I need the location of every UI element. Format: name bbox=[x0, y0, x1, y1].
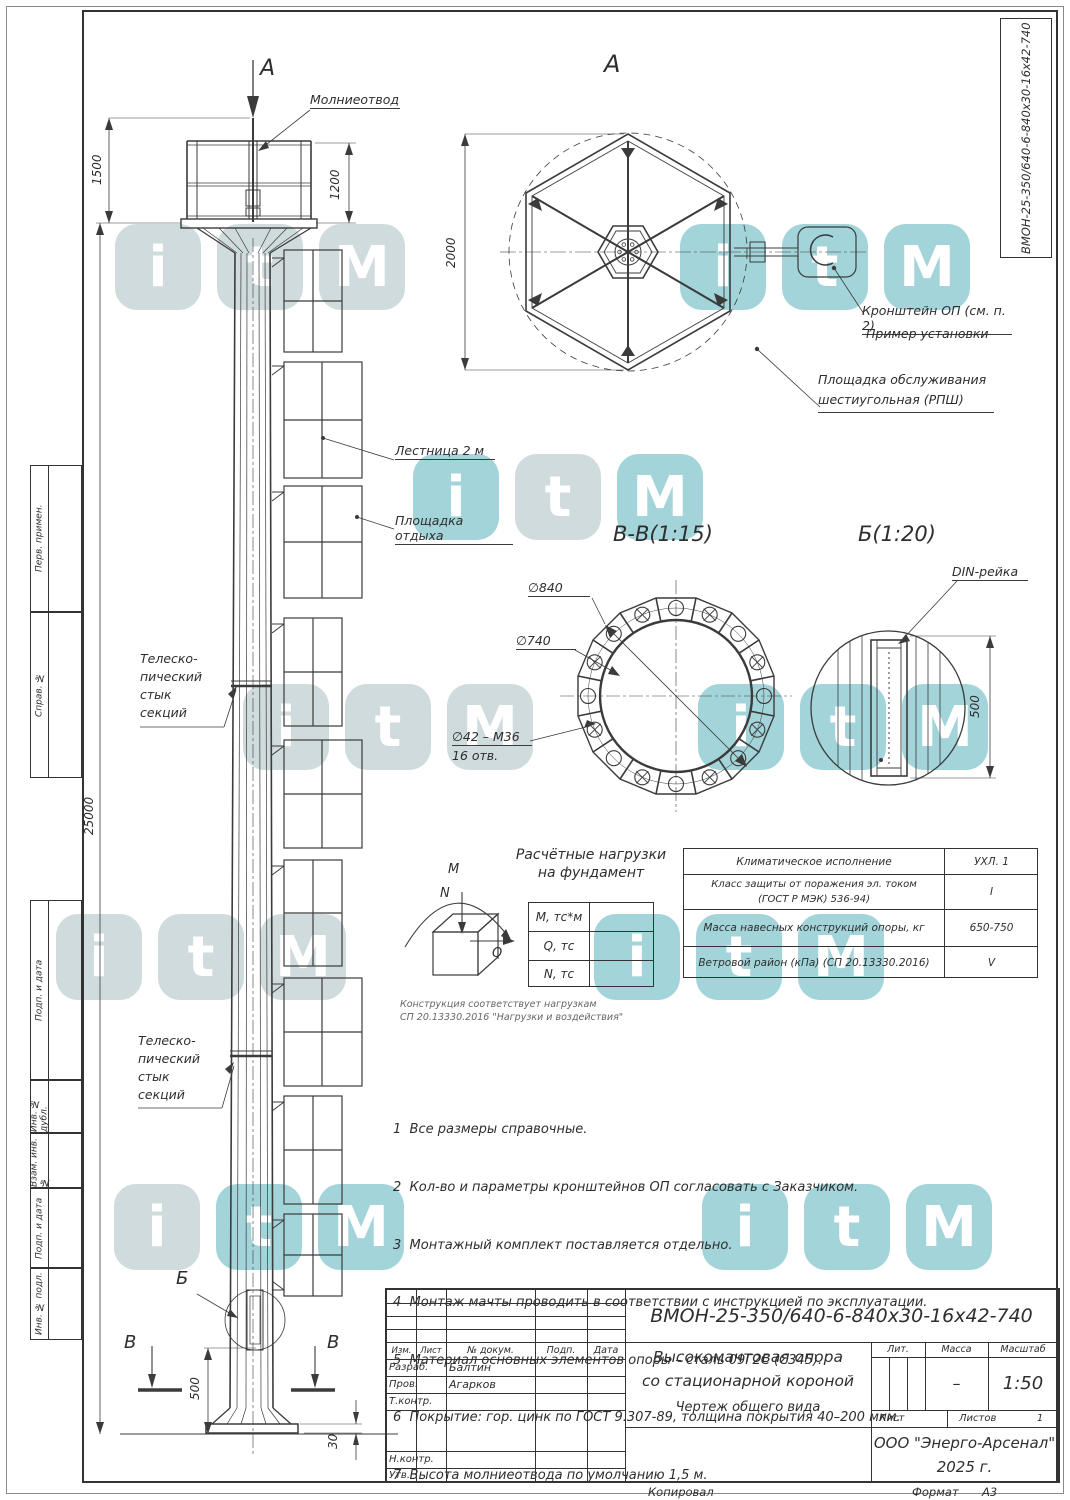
climate-row-value: V bbox=[944, 946, 1039, 979]
holes-count-label: 16 отв. bbox=[452, 748, 498, 763]
front-view-mast bbox=[120, 60, 398, 1455]
margin-box: Перв. примен. bbox=[30, 465, 82, 612]
loads-note: Конструкция соответствует нагрузкам СП 2… bbox=[400, 998, 623, 1024]
margin-label: Взам. инв. № bbox=[31, 1134, 48, 1187]
telescopic-joint-label-2: Телеско- пический стык секций bbox=[138, 1032, 200, 1104]
ladder-label: Лестница 2 м bbox=[395, 443, 495, 460]
dim-1200: 1200 bbox=[328, 154, 342, 216]
label-line: Расчётные нагрузки bbox=[510, 846, 672, 864]
view-a-hexagon bbox=[461, 133, 866, 407]
top-stamp-doc-number: ВМОН-25-350/640-6-840х30-16х42-740 bbox=[1000, 18, 1052, 258]
climate-row-value: 650-750 bbox=[944, 909, 1039, 946]
label-line: Телеско- bbox=[138, 1032, 200, 1050]
label-line: стык bbox=[140, 686, 202, 704]
label-line: шестиугольная (РПШ) bbox=[818, 390, 994, 410]
note-line: 3 Монтажный комплект поставляется отдель… bbox=[393, 1236, 1003, 1255]
company-year: 2025 г. bbox=[871, 1455, 1058, 1479]
label-line: пический bbox=[138, 1050, 200, 1068]
margin-box: Подп. и дата bbox=[30, 1188, 82, 1268]
climate-row-label: Климатическое исполнение bbox=[684, 849, 944, 874]
listov-label: Листов bbox=[959, 1410, 1019, 1427]
scale-value: 1:50 bbox=[988, 1357, 1058, 1410]
margin-box: Инв. № дубл. bbox=[30, 1080, 82, 1133]
listov-value: 1 bbox=[1027, 1410, 1053, 1427]
moment-label: М bbox=[448, 862, 459, 877]
label-line: Площадка обслуживания bbox=[818, 370, 994, 390]
loads-row-label: N, тс bbox=[529, 960, 589, 988]
format-value: А3 bbox=[982, 1485, 997, 1499]
dim-2000: 2000 bbox=[444, 224, 458, 282]
drawing-type: Чертеж общего вида bbox=[625, 1396, 871, 1418]
section-b-mark-left: В bbox=[124, 1332, 136, 1353]
label-line: СП 20.13330.2016 "Нагрузки и воздействия… bbox=[400, 1011, 623, 1024]
row-utv: Утв. bbox=[389, 1468, 446, 1483]
label-line: секций bbox=[140, 704, 202, 722]
title-block: ВМОН-25-350/640-6-840х30-16х42-740 Изм. … bbox=[385, 1288, 1060, 1483]
margin-box: Взам. инв. № bbox=[30, 1133, 82, 1188]
climate-row-value: УХЛ. 1 bbox=[944, 849, 1039, 874]
rest-platform-label: Площадка отдыха bbox=[395, 513, 513, 545]
holes-label: ∅42 – М36 bbox=[452, 729, 532, 746]
row-razrab: Разраб. bbox=[389, 1359, 446, 1376]
note-line: 2 Кол-во и параметры кронштейнов ОП согл… bbox=[393, 1178, 1003, 1197]
margin-box: Подп. и дата bbox=[30, 900, 82, 1080]
drawing-name-line1: Высокомачтовая опора bbox=[625, 1345, 871, 1369]
loads-row-label: М, тс*м bbox=[529, 903, 589, 931]
lit-header: Лит. bbox=[871, 1342, 925, 1357]
loads-title: Расчётные нагрузки на фундамент bbox=[510, 846, 672, 882]
label-line: секций bbox=[138, 1086, 200, 1104]
din-rail-label: DIN-рейка bbox=[952, 564, 1028, 581]
margin-label: Подп. и дата bbox=[31, 901, 48, 1079]
loads-table: М, тс*м Q, тс N, тс bbox=[528, 902, 654, 987]
col-podp: Подп. bbox=[535, 1342, 587, 1359]
col-ndoc: № докум. bbox=[446, 1342, 535, 1359]
titleblock-doc-number: ВМОН-25-350/640-6-840х30-16х42-740 bbox=[625, 1290, 1058, 1342]
label-line: стык bbox=[138, 1068, 200, 1086]
margin-label: Инв. № подл. bbox=[31, 1269, 48, 1339]
dia-840-label: ∅840 bbox=[528, 580, 590, 597]
dim-500-front: 500 bbox=[188, 1360, 202, 1418]
format-label: Формат bbox=[912, 1485, 959, 1499]
col-data: Дата bbox=[587, 1342, 625, 1359]
margin-label: Подп. и дата bbox=[31, 1189, 48, 1267]
margin-label: Инв. № дубл. bbox=[31, 1081, 48, 1132]
detail-b-mark: Б bbox=[176, 1268, 188, 1289]
section-bb-flange bbox=[530, 580, 792, 812]
climate-row-value: I bbox=[944, 874, 1039, 909]
row-tkontr: Т.контр. bbox=[389, 1393, 446, 1410]
label-line: на фундамент bbox=[510, 864, 672, 882]
person-prov: Агарков bbox=[449, 1376, 535, 1393]
company-name: ООО "Энерго-Арсенал" bbox=[871, 1429, 1058, 1457]
label-line: Телеско- bbox=[140, 650, 202, 668]
dim-500-detail: 500 bbox=[968, 678, 982, 736]
col-list: Лист bbox=[416, 1342, 446, 1359]
massa-header: Масса bbox=[925, 1342, 988, 1357]
axial-label: N bbox=[440, 886, 450, 901]
dia-740-label: ∅740 bbox=[516, 633, 576, 650]
margin-box: Справ. № bbox=[30, 612, 82, 778]
drawing-name-line2: со стационарной короной bbox=[625, 1369, 871, 1393]
dim-25000: 25000 bbox=[82, 783, 96, 849]
margin-label: Справ. № bbox=[31, 613, 48, 777]
bracket-example-label: Пример установки bbox=[866, 326, 989, 341]
col-izm: Изм. bbox=[387, 1342, 416, 1359]
row-prov: Пров. bbox=[389, 1376, 446, 1393]
massa-value: – bbox=[925, 1357, 988, 1410]
shear-label: Q bbox=[492, 946, 502, 961]
label-line: Конструкция соответствует нагрузкам bbox=[400, 998, 623, 1011]
drawing-sheet: itM itM itM itM itM itM itM itM itM Перв… bbox=[0, 0, 1070, 1500]
label-line: пический bbox=[140, 668, 202, 686]
section-bb-title: В-В(1:15) bbox=[613, 522, 713, 546]
climate-table: Климатическое исполнение УХЛ. 1 Класс за… bbox=[683, 848, 1038, 978]
detail-b-title: Б(1:20) bbox=[858, 522, 936, 546]
dim-30: 30 bbox=[326, 1424, 340, 1458]
loads-cube-diagram bbox=[405, 892, 515, 975]
service-platform-label: Площадка обслуживания шестиугольная (РПШ… bbox=[818, 370, 994, 413]
section-b-mark-right: В bbox=[327, 1332, 339, 1353]
loads-row-label: Q, тс bbox=[529, 931, 589, 960]
climate-row-label: Масса навесных конструкций опоры, кг bbox=[684, 909, 944, 946]
margin-label: Перв. примен. bbox=[31, 466, 48, 611]
list-label: Лист bbox=[879, 1410, 929, 1427]
person-razrab: Балтин bbox=[449, 1359, 535, 1376]
section-a-mark: А bbox=[260, 56, 275, 81]
row-nkontr: Н.контр. bbox=[389, 1451, 446, 1468]
note-line: 1 Все размеры справочные. bbox=[393, 1120, 1003, 1139]
lightning-rod-label: Молниеотвод bbox=[310, 92, 400, 109]
climate-row-label: Ветровой район (кПа) (СП 20.13330.2016) bbox=[684, 946, 944, 979]
telescopic-joint-label-1: Телеско- пический стык секций bbox=[140, 650, 202, 722]
climate-row-label2: (ГОСТ Р МЭК) 536-94) bbox=[684, 890, 944, 908]
masshtab-header: Масштаб bbox=[988, 1342, 1058, 1357]
dim-1500: 1500 bbox=[90, 140, 104, 200]
view-a-title: А bbox=[604, 50, 620, 78]
kopiroval-label: Копировал bbox=[648, 1485, 714, 1499]
margin-box: Инв. № подл. bbox=[30, 1268, 82, 1340]
